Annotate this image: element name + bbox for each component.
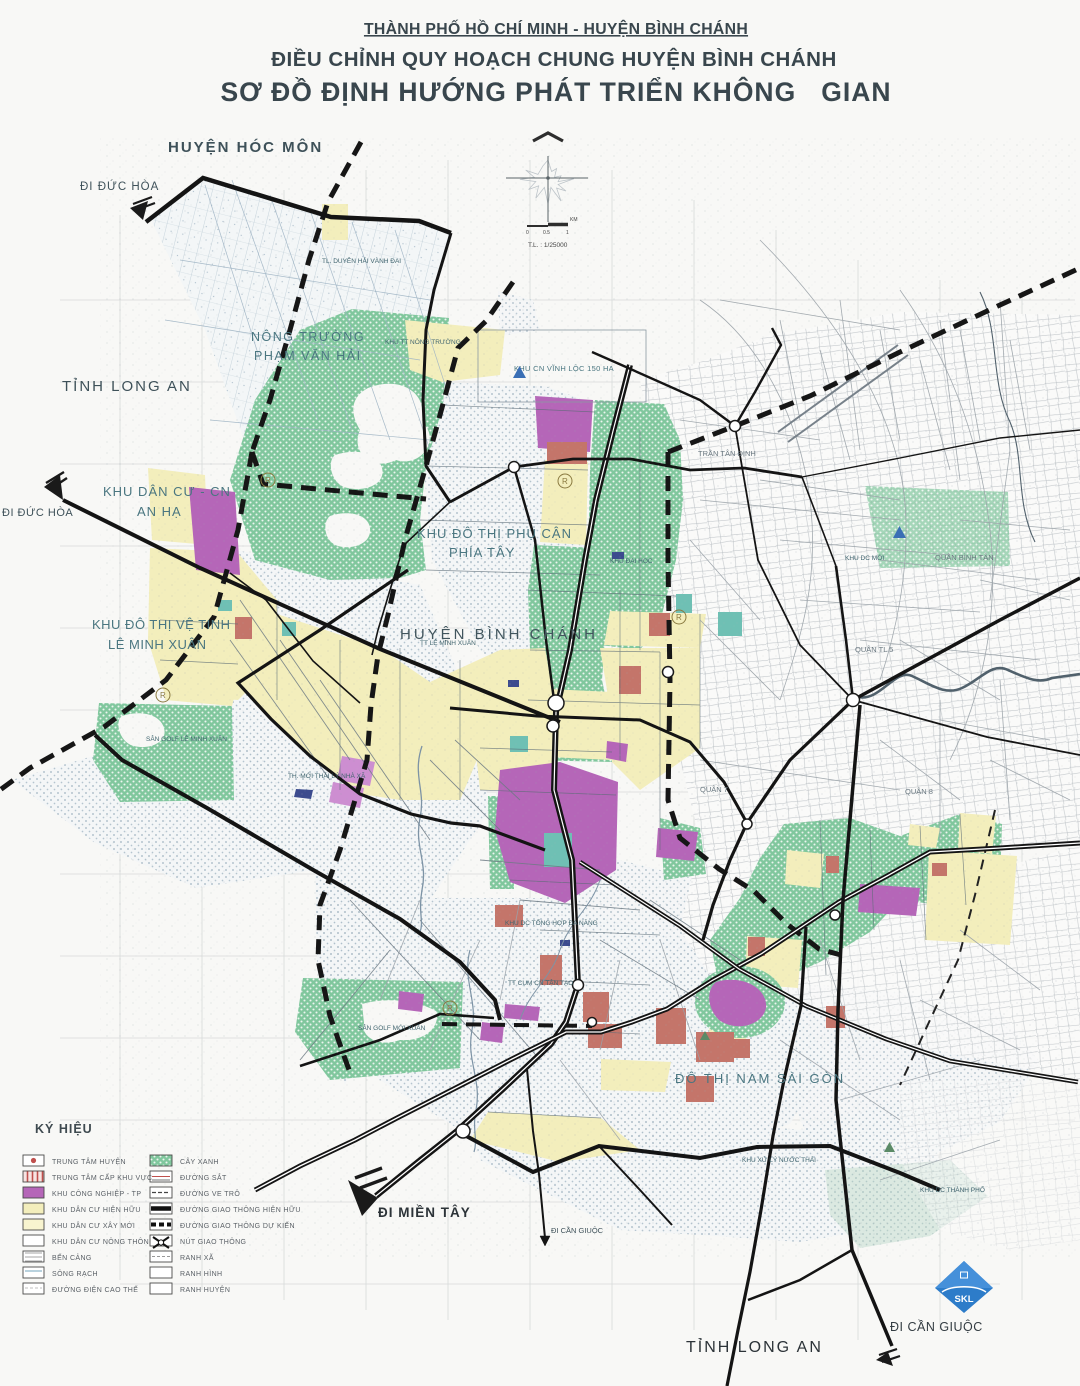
- svg-text:KHU CN VĨNH LỘC 150 HA: KHU CN VĨNH LỘC 150 HA: [514, 364, 614, 373]
- svg-text:KHU DÂN CƯ - CN: KHU DÂN CƯ - CN: [103, 484, 231, 499]
- svg-text:KHU DC MỚI: KHU DC MỚI: [845, 553, 885, 562]
- svg-text:1: 1: [566, 230, 569, 236]
- svg-text:KHU XỬ LÝ NƯỚC THẢI: KHU XỬ LÝ NƯỚC THẢI: [742, 1155, 816, 1164]
- svg-text:R: R: [447, 1004, 453, 1013]
- svg-text:ĐI MIỀN TÂY: ĐI MIỀN TÂY: [378, 1205, 471, 1220]
- svg-text:SKL: SKL: [955, 1294, 974, 1305]
- svg-text:0: 0: [526, 230, 529, 236]
- svg-text:KHU DÂN CƯ HIỆN HỮU: KHU DÂN CƯ HIỆN HỮU: [52, 1205, 141, 1214]
- svg-text:RANH XÃ: RANH XÃ: [180, 1253, 214, 1262]
- svg-text:RANH HÌNH: RANH HÌNH: [180, 1269, 223, 1278]
- svg-text:R: R: [562, 477, 568, 486]
- svg-text:SÔNG RẠCH: SÔNG RẠCH: [52, 1269, 98, 1278]
- svg-text:ĐI ĐỨC HÒA: ĐI ĐỨC HÒA: [80, 180, 159, 193]
- svg-text:LÊ MINH XUÂN: LÊ MINH XUÂN: [108, 637, 206, 652]
- svg-text:RANH HUYỆN: RANH HUYỆN: [180, 1285, 230, 1294]
- svg-text:KHU ĐẠI HỌC: KHU ĐẠI HỌC: [610, 558, 653, 565]
- svg-text:R: R: [265, 476, 271, 485]
- svg-text:ĐI CẦN GIUỘC: ĐI CẦN GIUỘC: [551, 1225, 604, 1235]
- svg-text:ĐI ĐỨC HÒA: ĐI ĐỨC HÒA: [2, 506, 73, 519]
- svg-text:TT LÊ MINH XUÂN: TT LÊ MINH XUÂN: [420, 638, 476, 647]
- svg-text:TỈNH LONG AN: TỈNH LONG AN: [686, 1337, 823, 1356]
- svg-text:T.L. : 1/25000: T.L. : 1/25000: [528, 242, 568, 249]
- svg-text:CÂY XANH: CÂY XANH: [180, 1157, 219, 1166]
- svg-text:ĐIỀU CHỈNH QUY HOẠCH CHUNG HUY: ĐIỀU CHỈNH QUY HOẠCH CHUNG HUYỆN BÌNH CH…: [271, 47, 837, 71]
- svg-text:PHÍA TÂY: PHÍA TÂY: [449, 545, 515, 560]
- svg-text:ĐI CẦN GIUỘC: ĐI CẦN GIUỘC: [890, 1319, 983, 1334]
- svg-text:ĐƯỜNG SẮT: ĐƯỜNG SẮT: [180, 1173, 227, 1182]
- svg-text:HUYỆN HÓC MÔN: HUYỆN HÓC MÔN: [168, 138, 323, 156]
- svg-text:TRẦN TÂN ĐỊNH: TRẦN TÂN ĐỊNH: [698, 448, 756, 458]
- svg-text:R: R: [160, 691, 166, 700]
- svg-text:KHU ĐÔ THỊ VỆ TINH: KHU ĐÔ THỊ VỆ TINH: [92, 617, 231, 632]
- svg-text:KHU ĐÔ THỊ PHỤ CẬN: KHU ĐÔ THỊ PHỤ CẬN: [417, 526, 572, 541]
- svg-text:KHU DC TỔNG HỢP ĐA NĂNG: KHU DC TỔNG HỢP ĐA NĂNG: [505, 918, 598, 927]
- svg-text:SÂN GOLF LÊ MINH XUÂN: SÂN GOLF LÊ MINH XUÂN: [146, 734, 227, 743]
- svg-text:R: R: [676, 613, 682, 622]
- svg-text:QUẬN 7: QUẬN 7: [700, 785, 728, 794]
- svg-text:SƠ ĐỒ ĐỊNH HƯỚNG PHÁT TRIỂN KH: SƠ ĐỒ ĐỊNH HƯỚNG PHÁT TRIỂN KHÔNG GIAN: [220, 77, 891, 107]
- svg-text:SÂN GOLF MỚI XUÂN: SÂN GOLF MỚI XUÂN: [358, 1023, 426, 1032]
- svg-text:ĐƯỜNG VE TRÔ: ĐƯỜNG VE TRÔ: [180, 1189, 240, 1198]
- svg-text:NÚT GIAO THÔNG: NÚT GIAO THÔNG: [180, 1237, 246, 1246]
- svg-text:QUẬN TL 5: QUẬN TL 5: [855, 645, 893, 654]
- svg-text:QUẬN 8: QUẬN 8: [905, 787, 933, 796]
- svg-text:TỈNH LONG AN: TỈNH LONG AN: [62, 378, 192, 395]
- svg-text:PHẠM VĂN HẢI: PHẠM VĂN HẢI: [254, 348, 362, 363]
- svg-text:TH. MỚI THẢI LÝ NHÀ XÃ: TH. MỚI THẢI LÝ NHÀ XÃ: [288, 771, 366, 780]
- svg-text:TL. DUYÊN HẢI VÀNH ĐAI: TL. DUYÊN HẢI VÀNH ĐAI: [322, 256, 401, 265]
- svg-text:KHU TT NÔNG TRƯỜNG: KHU TT NÔNG TRƯỜNG: [385, 337, 461, 346]
- svg-text:KÝ HIỆU: KÝ HIỆU: [35, 1121, 93, 1136]
- svg-text:ĐƯỜNG GIAO THÔNG HIỆN HỮU: ĐƯỜNG GIAO THÔNG HIỆN HỮU: [180, 1205, 301, 1214]
- svg-text:KHU DÂN CƯ NÔNG THÔN: KHU DÂN CƯ NÔNG THÔN: [52, 1237, 149, 1246]
- svg-text:0.5: 0.5: [543, 230, 550, 236]
- svg-text:KHU CÔNG NGHIỆP - TP: KHU CÔNG NGHIỆP - TP: [52, 1189, 141, 1198]
- svg-text:ĐÔ THỊ NAM SÀI GÒN: ĐÔ THỊ NAM SÀI GÒN: [675, 1071, 845, 1086]
- svg-text:AN HẠ: AN HẠ: [137, 504, 182, 519]
- svg-text:THÀNH PHỐ HỒ CHÍ MINH - HUYỆN: THÀNH PHỐ HỒ CHÍ MINH - HUYỆN BÌNH CHÁNH: [364, 18, 748, 38]
- svg-text:KM: KM: [570, 217, 578, 223]
- svg-text:NÔNG TRƯỜNG: NÔNG TRƯỜNG: [251, 329, 365, 344]
- svg-text:KHU DÂN CƯ XÂY MỚI: KHU DÂN CƯ XÂY MỚI: [52, 1221, 135, 1230]
- svg-text:TT CỤM CN TÂN TẠO: TT CỤM CN TÂN TẠO: [508, 978, 573, 987]
- svg-text:TRUNG TÂM HUYỆN: TRUNG TÂM HUYỆN: [52, 1157, 126, 1166]
- svg-text:QUẬN BÌNH TÂN: QUẬN BÌNH TÂN: [935, 553, 994, 562]
